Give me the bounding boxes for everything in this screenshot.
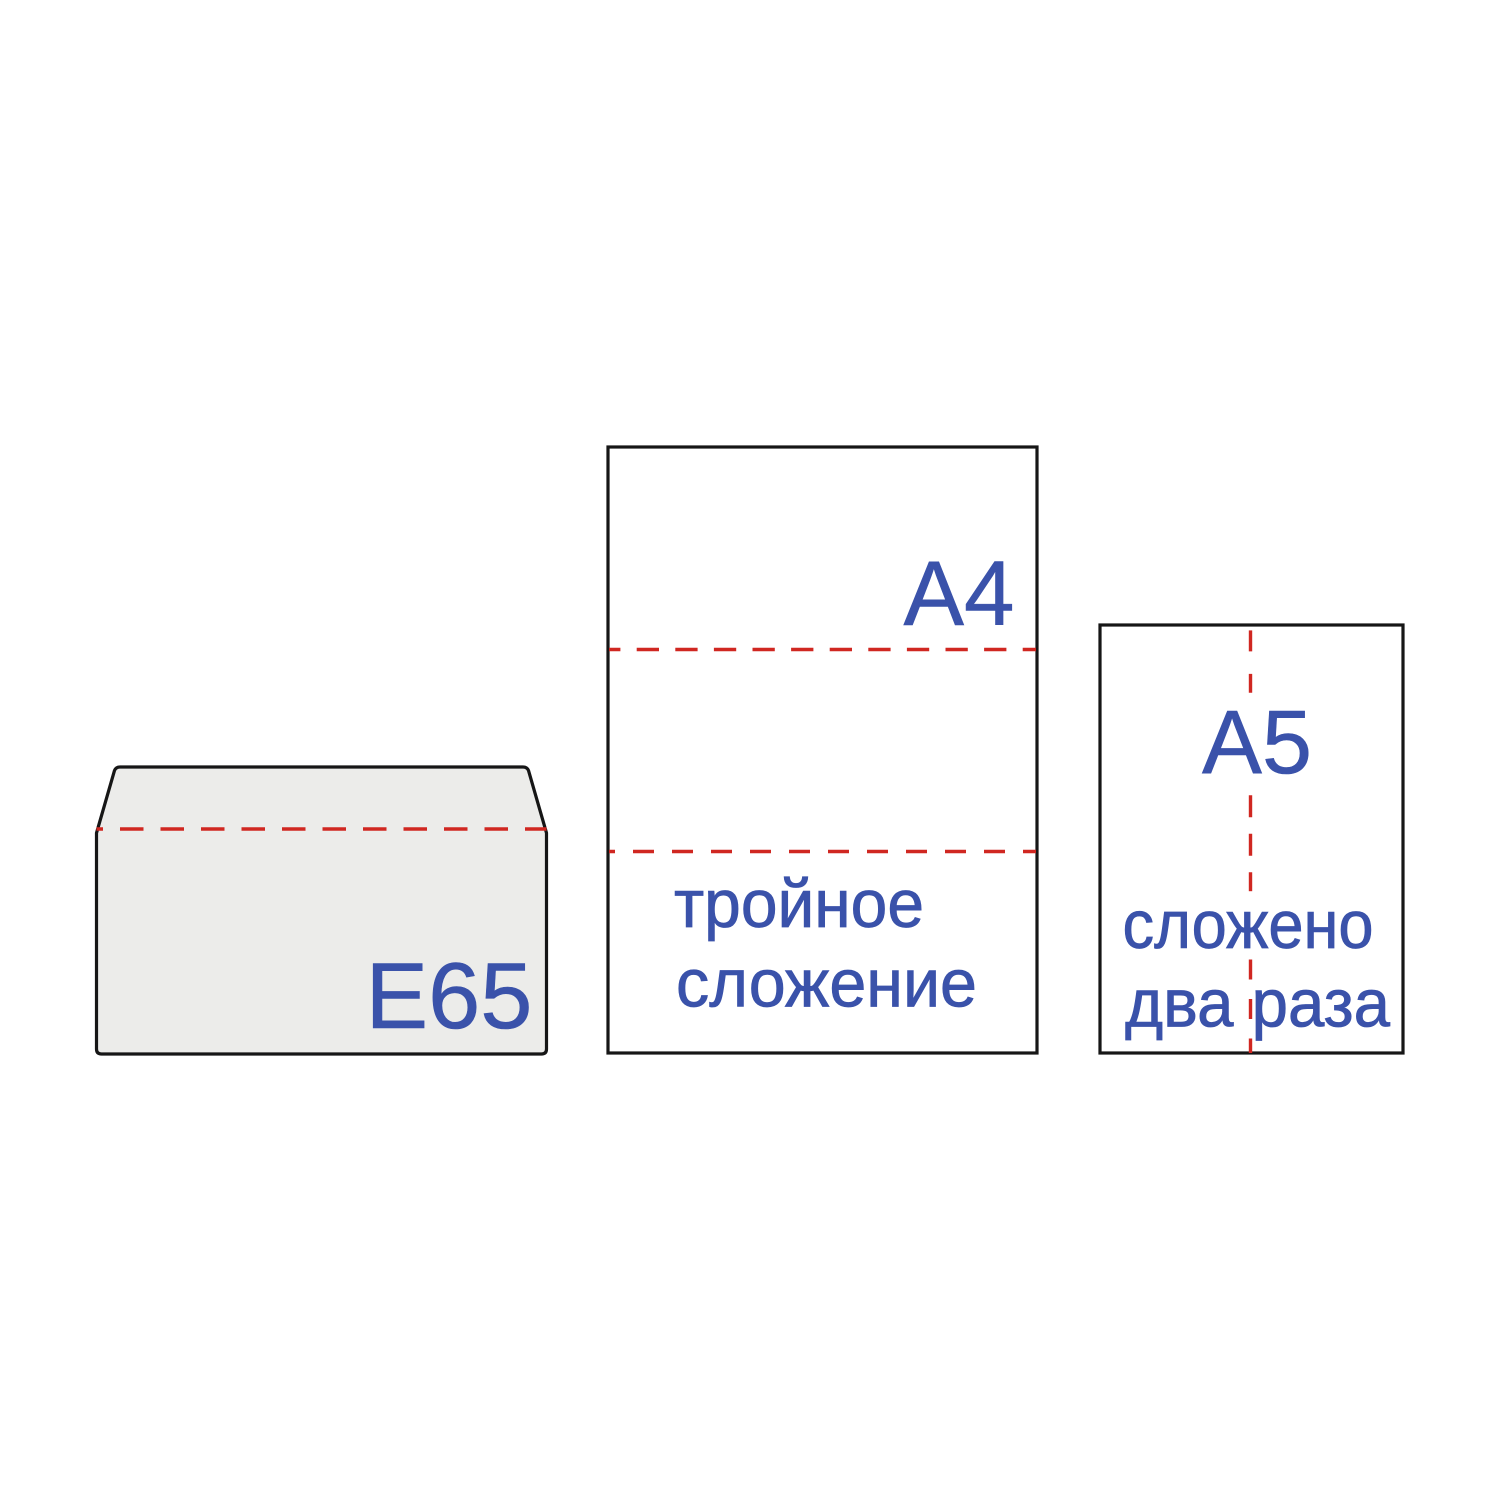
svg-text:сложение: сложение xyxy=(676,946,977,1022)
svg-text:А5: А5 xyxy=(1202,693,1312,793)
svg-text:тройное: тройное xyxy=(674,866,924,942)
svg-text:два раза: два раза xyxy=(1125,966,1390,1042)
svg-text:сложено: сложено xyxy=(1123,887,1374,963)
svg-text:A4: A4 xyxy=(904,543,1015,645)
svg-text:E65: E65 xyxy=(366,943,533,1048)
